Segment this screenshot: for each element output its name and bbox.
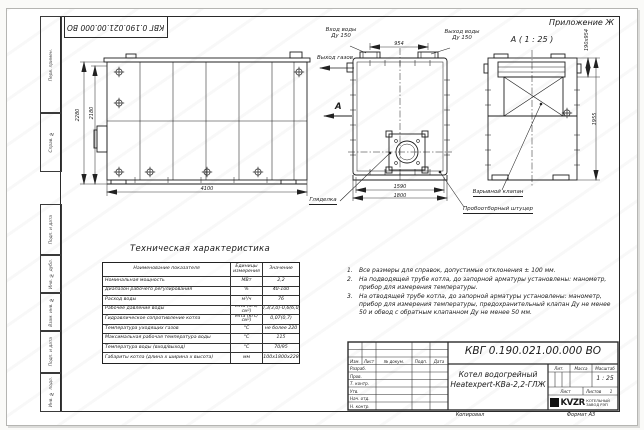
copied-label: Копировал [440,413,500,419]
spec-row-value: 0,3(3,0)-0,6(6,0) [263,306,299,316]
spec-row-units: °С [231,334,263,344]
water-inlet-label: Вход воды Ду 150 [320,27,362,39]
spec-row-name: Расход воды [103,296,231,306]
drawing-sheet: Перв. примен. Справ. № Подп. и дата Инв.… [0,0,644,430]
spec-row-value: 4100х1800х2280 [263,353,299,363]
spec-row-units: МПа (кгс/см²) [231,306,263,316]
spec-header-value: Значение [263,263,299,277]
explosion-valve-label: Взрывной клапан [467,189,529,195]
title-block-product-name: Котел водогрейный Heatexpert-КВа-2,2-ГЛЖ [448,370,548,390]
spec-row-units: МПа (кгс/см²) [231,315,263,325]
spec-row-value: 0,07(0,7) [263,315,299,325]
dim-flange-span: 954 [386,41,412,47]
tb-col-doc: № докум. [376,359,412,364]
kvzr-logo: KVZR КОТЕЛЬНЫЙ ЗАВОД РЭП [550,396,616,409]
dim-width: 1800 [385,193,415,199]
dim-length: 4100 [192,186,222,192]
tb-scale-value: 1 : 25 [592,376,618,383]
dim-height-total: 2280 [75,102,83,128]
tb-row-razrab: Разраб. [350,366,376,371]
gas-outlet-label: Выход газов [314,55,356,61]
note-item: На подводящей трубе котла, до запорной а… [346,276,618,292]
tb-sheets-value: 1 [606,389,616,394]
side-view-dimension-lines [80,62,307,196]
dim-inner-width: 1590 [385,184,415,190]
spec-row-units: % [231,287,263,297]
section-arrow-letter: А [335,103,347,112]
plan-view-drawing [347,48,452,182]
tb-row-prov: Пров. [350,374,376,379]
kvzr-logo-caption: КОТЕЛЬНЫЙ ЗАВОД РЭП [586,399,610,407]
section-view-drawing [484,50,581,186]
spec-row-units: °С [231,325,263,335]
spec-row-value: 76 [263,296,299,306]
tb-col-date: Дата [430,359,448,364]
note-item: Все размеры для справок, допустимые откл… [346,267,618,275]
sight-glass-label: Гляделка [302,197,344,203]
spec-table-title: Техническая характеристика [112,245,288,254]
tb-row-nachotd: Нач. отд. [350,396,376,401]
spec-row-value: 2,2 [263,277,299,287]
spec-row-name: Диапазон рабочего регулирования [103,287,231,297]
spec-table: Наименование показателя Единицы измерени… [102,262,300,364]
notes-list: Все размеры для справок, допустимые откл… [346,267,618,318]
spec-row-units: м³/ч [231,296,263,306]
tb-mass-label: Масса [570,366,592,371]
tb-scale-label: Масштаб [592,366,618,371]
note-item: На отводящей трубе котла, до запорной ар… [346,293,618,317]
tb-col-sign: Подп. [412,359,430,364]
spec-row-value: 40-100 [263,287,299,297]
kvzr-logo-mark [550,398,559,407]
spec-row-name: Максимальная рабочая температура воды [103,334,231,344]
spec-row-name: Рабочее давление воды [103,306,231,316]
spec-row-value: 115 [263,334,299,344]
format-label: Формат А3 [556,413,606,419]
spec-row-value: не более 220 [263,325,299,335]
spec-row-units: мм [231,353,263,363]
spec-row-name: Гидравлическое сопротивление котла [103,315,231,325]
spec-row-name: Номинальная мощность [103,277,231,287]
water-outlet-label: Выход воды Ду 150 [440,29,484,41]
tb-sheet-label: Лист [548,389,583,394]
tb-row-nkontr: Н. контр. [350,404,376,409]
tb-lit-label: Лит. [548,366,570,371]
spec-row-units: МВт [231,277,263,287]
side-view-drawing [94,52,310,184]
spec-header-name: Наименование показателя [103,263,231,277]
tb-col-izm: Изм. [348,359,362,364]
tb-row-tkontr: Т. контр. [350,381,376,386]
dim-valve-size: 190х954 [584,26,592,54]
title-block-doc-number: КВГ 0.190.021.00.000 ВО [448,346,618,358]
tb-row-utv: Утв. [350,389,376,394]
tb-col-list: Лист [362,359,376,364]
kvzr-logo-text: KVZR [561,398,585,408]
spec-row-name: Габариты котла (длина х ширина х высота) [103,353,231,363]
dim-height-body: 2180 [89,100,97,126]
section-view-title: А ( 1 : 25 ) [500,36,564,45]
dim-section-height: 1955 [592,105,600,133]
tb-sheets-label: Листов [586,389,608,394]
spec-row-name: Температура воды (вход/выход) [103,344,231,354]
sampling-fitting-label: Пробоотборный штуцер [456,206,540,212]
spec-row-units: °С [231,344,263,354]
spec-row-value: 70/95 [263,344,299,354]
spec-header-units: Единицы измерения [231,263,263,277]
spec-row-name: Температура уходящих газов [103,325,231,335]
